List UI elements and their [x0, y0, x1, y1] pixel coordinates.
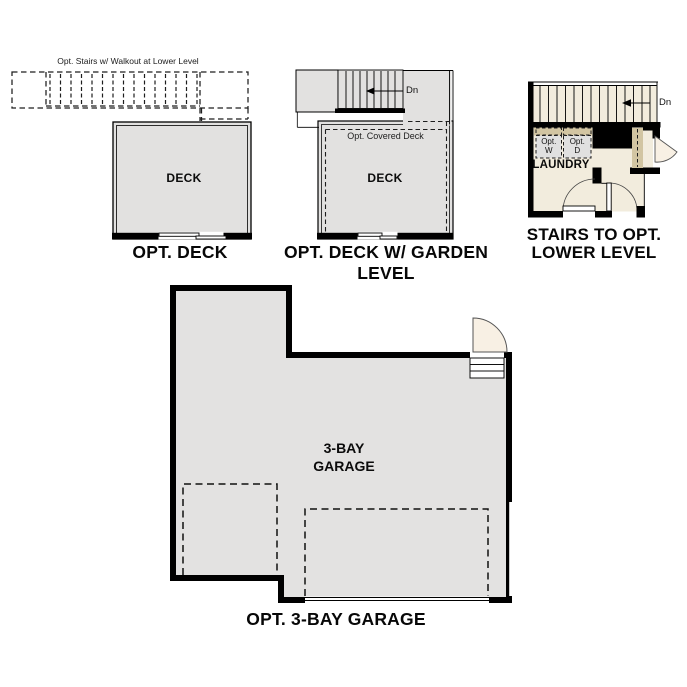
- stair-void-wall: [593, 122, 633, 149]
- upper-landing-fill: [403, 71, 452, 126]
- wall-segment: [595, 211, 612, 218]
- opt-dryer-label: Opt. D: [564, 137, 592, 156]
- laundry-room-label: LAUNDRY: [528, 159, 594, 171]
- entry-steps: [470, 358, 504, 378]
- exterior-door: [655, 136, 677, 162]
- garage-caption: OPT. 3-BAY GARAGE: [236, 609, 436, 630]
- wall-segment: [317, 233, 358, 240]
- closet-floor: [643, 130, 653, 168]
- wall-segment: [630, 168, 660, 175]
- floorplan-linework: [0, 0, 687, 687]
- floorplan-sheet: Opt. Stairs w/ Walkout at Lower Level DE…: [0, 0, 687, 687]
- sliding-door: [159, 232, 227, 240]
- wall-segment: [528, 211, 563, 218]
- deck-room-label: DECK: [335, 171, 435, 185]
- opt-washer-label: Opt. W: [536, 137, 562, 156]
- wall-segment: [112, 233, 159, 240]
- stair-landing: [296, 70, 338, 112]
- optional-stairs-note: Opt. Stairs w/ Walkout at Lower Level: [10, 56, 246, 66]
- wall-segment: [223, 233, 252, 240]
- optional-stairs-dashed: [12, 72, 248, 121]
- landing-step-lines: [297, 112, 319, 127]
- garden-deck-plan: [296, 70, 453, 239]
- garage-room-label: 3-BAY GARAGE: [284, 440, 404, 476]
- opt-deck-caption: OPT. DECK: [80, 242, 280, 263]
- stairs-down: [528, 82, 658, 122]
- wall-segment: [397, 233, 453, 240]
- lower-level-caption: STAIRS TO OPT. LOWER LEVEL: [514, 226, 674, 263]
- deck-room-label: DECK: [134, 171, 234, 185]
- wall-segment: [637, 206, 646, 218]
- wall-segment: [653, 124, 661, 139]
- opt-deck-plan: [12, 72, 252, 239]
- optional-stair-treads: [50, 74, 197, 106]
- down-label: Dn: [406, 85, 418, 96]
- sliding-door: [358, 232, 398, 240]
- entry-door-swing: [473, 318, 507, 352]
- down-label: Dn: [659, 97, 671, 108]
- wall-segment: [528, 82, 534, 218]
- wall-notch: [509, 502, 514, 596]
- covered-deck-note: Opt. Covered Deck: [317, 131, 454, 141]
- garden-deck-caption: OPT. DECK W/ GARDEN LEVEL: [266, 242, 506, 284]
